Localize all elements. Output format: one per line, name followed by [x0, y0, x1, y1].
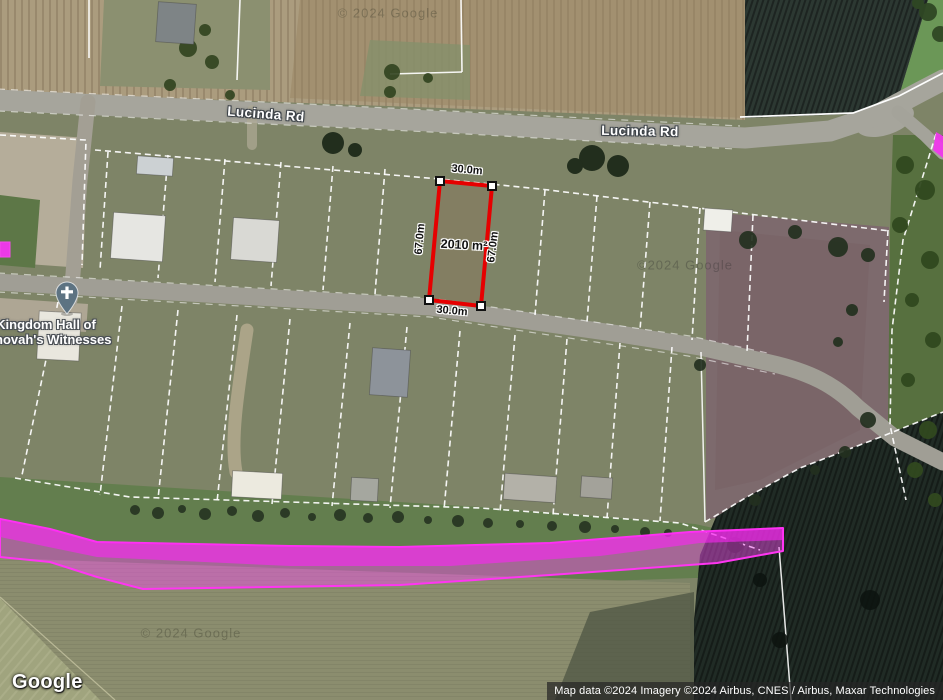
map-attribution[interactable]: Map data ©2024 Imagery ©2024 Airbus, CNE…	[547, 682, 943, 700]
map-canvas	[0, 0, 943, 700]
satellite-map[interactable]: Lucinda Rd Lucinda Rd Kingdom Hall of Je…	[0, 0, 943, 700]
